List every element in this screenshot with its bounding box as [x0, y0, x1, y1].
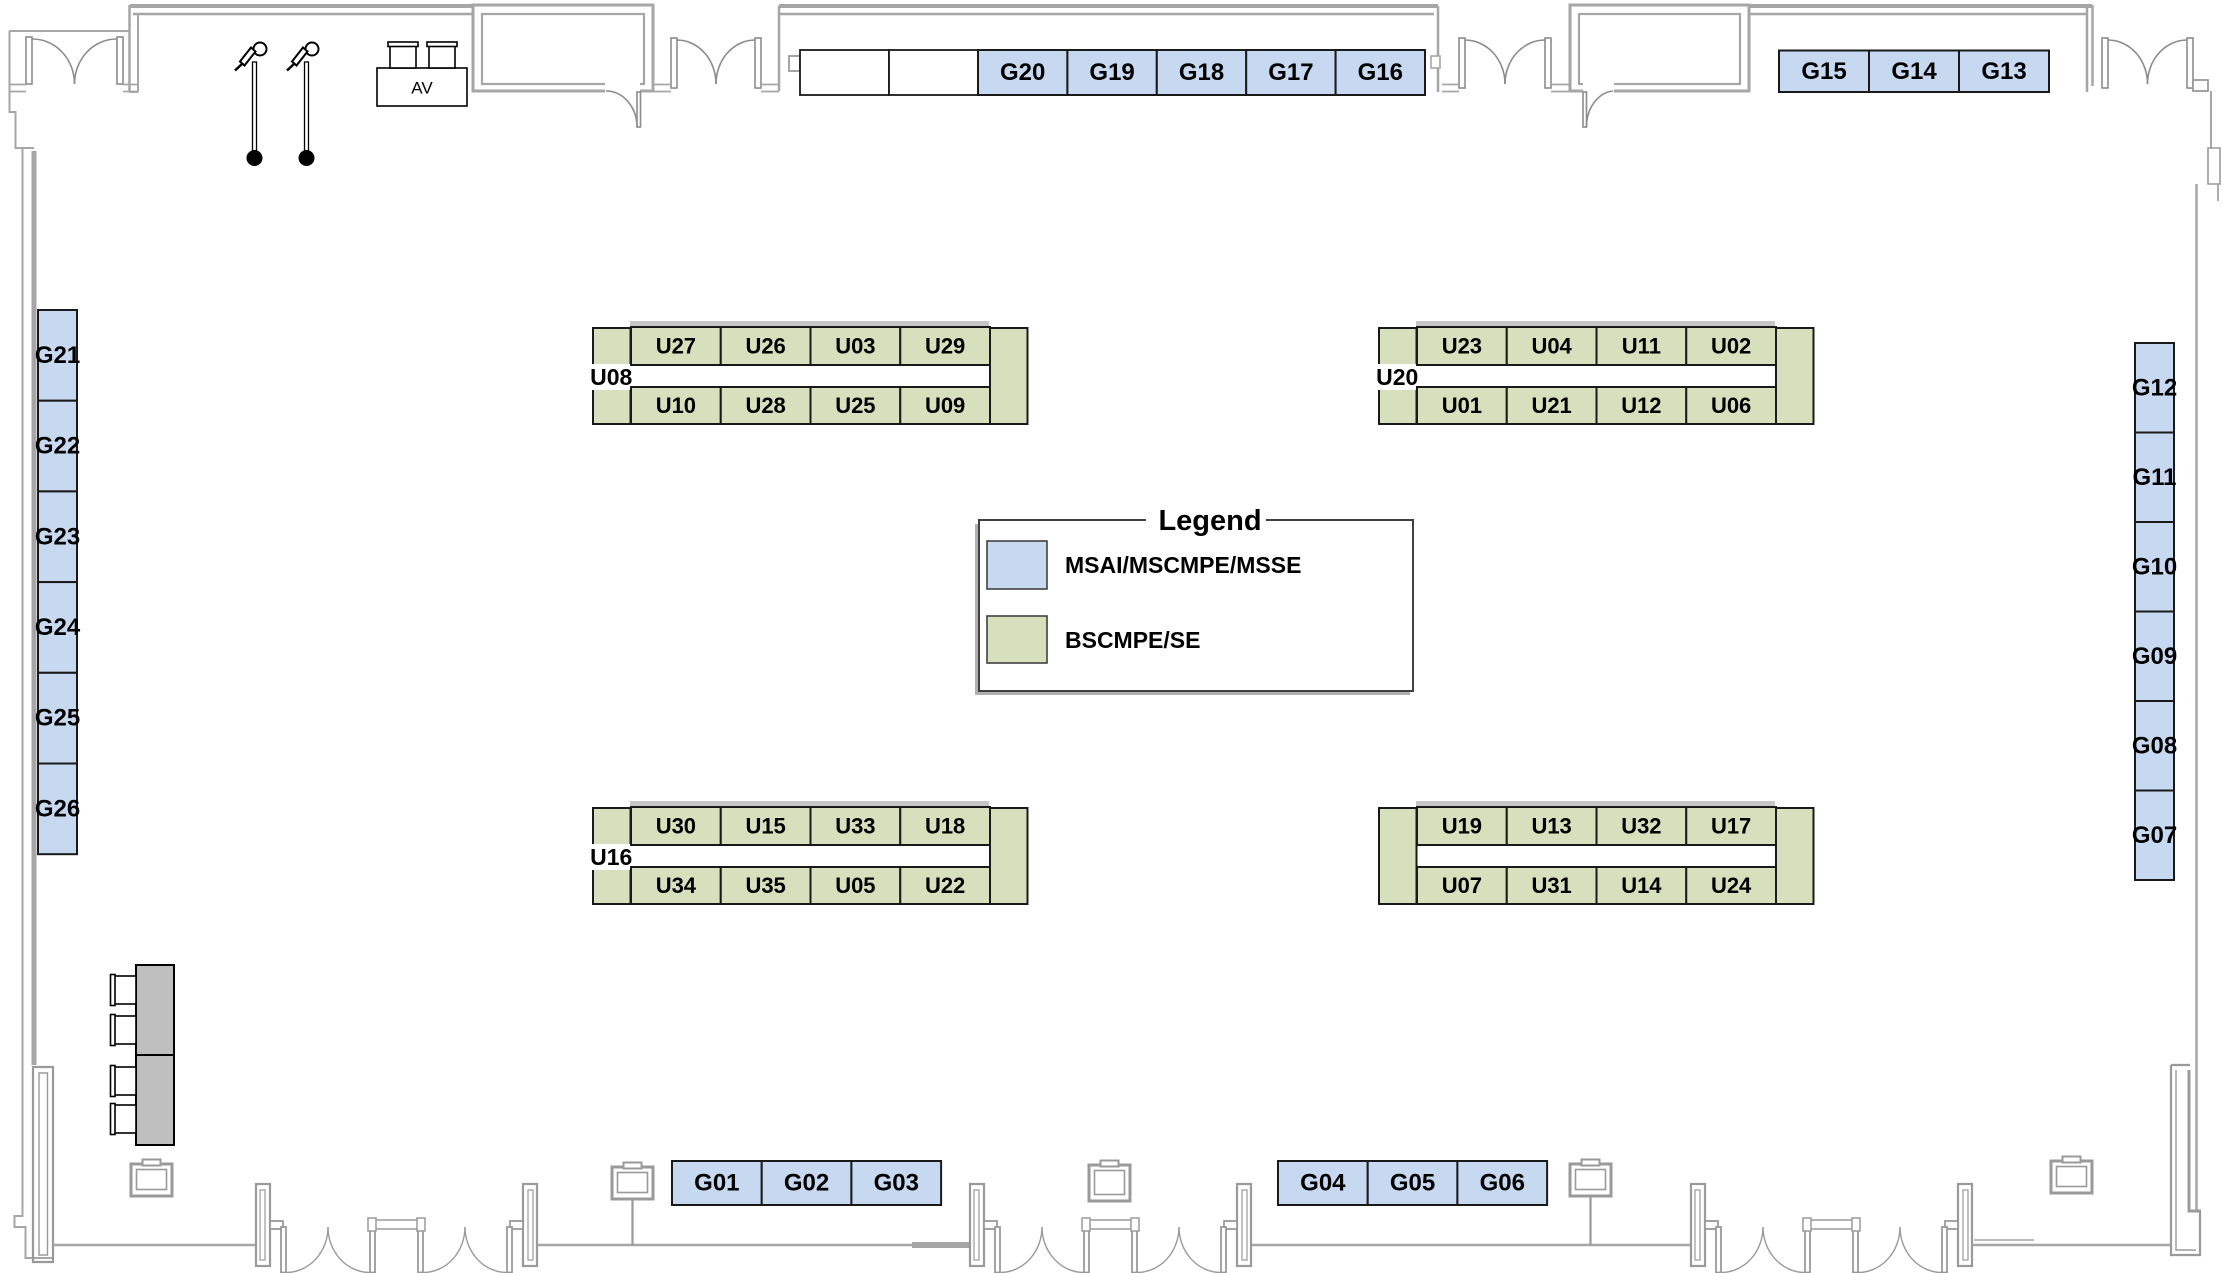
- svg-text:U10: U10: [656, 393, 696, 418]
- svg-text:U13: U13: [1531, 814, 1571, 839]
- svg-text:U22: U22: [925, 873, 965, 898]
- svg-text:U34: U34: [656, 873, 697, 898]
- svg-text:G25: G25: [35, 705, 80, 732]
- svg-text:G06: G06: [1480, 1170, 1525, 1197]
- svg-text:U17: U17: [1711, 814, 1751, 839]
- svg-text:G12: G12: [2132, 374, 2177, 401]
- svg-text:U04: U04: [1531, 334, 1572, 359]
- svg-text:G18: G18: [1179, 59, 1224, 86]
- svg-text:U33: U33: [835, 814, 875, 839]
- svg-text:G15: G15: [1801, 58, 1846, 85]
- svg-text:G07: G07: [2132, 822, 2177, 849]
- svg-text:U26: U26: [745, 334, 785, 359]
- svg-text:U28: U28: [745, 393, 785, 418]
- svg-text:U01: U01: [1442, 393, 1482, 418]
- svg-text:G19: G19: [1089, 59, 1134, 86]
- svg-text:G17: G17: [1268, 59, 1313, 86]
- svg-text:AV: AV: [411, 79, 433, 98]
- svg-text:U35: U35: [745, 873, 785, 898]
- svg-text:G05: G05: [1390, 1170, 1435, 1197]
- svg-text:G11: G11: [2132, 464, 2176, 491]
- svg-text:U19: U19: [1442, 814, 1482, 839]
- svg-text:G14: G14: [1891, 58, 1937, 85]
- svg-text:U30: U30: [656, 814, 696, 839]
- svg-text:U06: U06: [1711, 393, 1751, 418]
- svg-text:U12: U12: [1621, 393, 1661, 418]
- svg-text:G22: G22: [35, 433, 80, 460]
- svg-text:U14: U14: [1621, 873, 1662, 898]
- svg-text:U18: U18: [925, 814, 965, 839]
- svg-text:Legend: Legend: [1158, 505, 1261, 537]
- svg-text:G02: G02: [784, 1170, 829, 1197]
- svg-text:G08: G08: [2132, 732, 2177, 759]
- svg-text:U32: U32: [1621, 814, 1661, 839]
- svg-text:U15: U15: [745, 814, 785, 839]
- svg-text:BSCMPE/SE: BSCMPE/SE: [1065, 627, 1200, 653]
- svg-text:G13: G13: [1981, 58, 2026, 85]
- svg-text:U08: U08: [590, 364, 632, 390]
- svg-text:U24: U24: [1711, 873, 1752, 898]
- svg-text:U07: U07: [1442, 873, 1482, 898]
- svg-text:U16: U16: [590, 844, 632, 870]
- svg-text:U27: U27: [656, 334, 696, 359]
- svg-text:U03: U03: [835, 334, 875, 359]
- svg-text:G04: G04: [1300, 1170, 1346, 1197]
- svg-text:U09: U09: [925, 393, 965, 418]
- svg-text:U23: U23: [1442, 334, 1482, 359]
- svg-text:G23: G23: [35, 523, 80, 550]
- svg-text:G09: G09: [2132, 643, 2177, 670]
- svg-text:U29: U29: [925, 334, 965, 359]
- svg-text:G21: G21: [35, 342, 80, 369]
- svg-text:U25: U25: [835, 393, 875, 418]
- svg-text:U11: U11: [1622, 334, 1661, 359]
- svg-text:G26: G26: [35, 795, 80, 822]
- svg-text:U31: U31: [1531, 873, 1571, 898]
- svg-text:G03: G03: [874, 1170, 919, 1197]
- svg-text:U05: U05: [835, 873, 875, 898]
- svg-text:G24: G24: [35, 614, 81, 641]
- svg-text:G16: G16: [1358, 59, 1403, 86]
- svg-text:MSAI/MSCMPE/MSSE: MSAI/MSCMPE/MSSE: [1065, 552, 1301, 578]
- svg-text:U02: U02: [1711, 334, 1751, 359]
- svg-text:U21: U21: [1531, 393, 1571, 418]
- svg-text:G20: G20: [1000, 59, 1045, 86]
- svg-text:G10: G10: [2132, 553, 2177, 580]
- svg-text:G01: G01: [694, 1170, 739, 1197]
- svg-text:U20: U20: [1376, 364, 1418, 390]
